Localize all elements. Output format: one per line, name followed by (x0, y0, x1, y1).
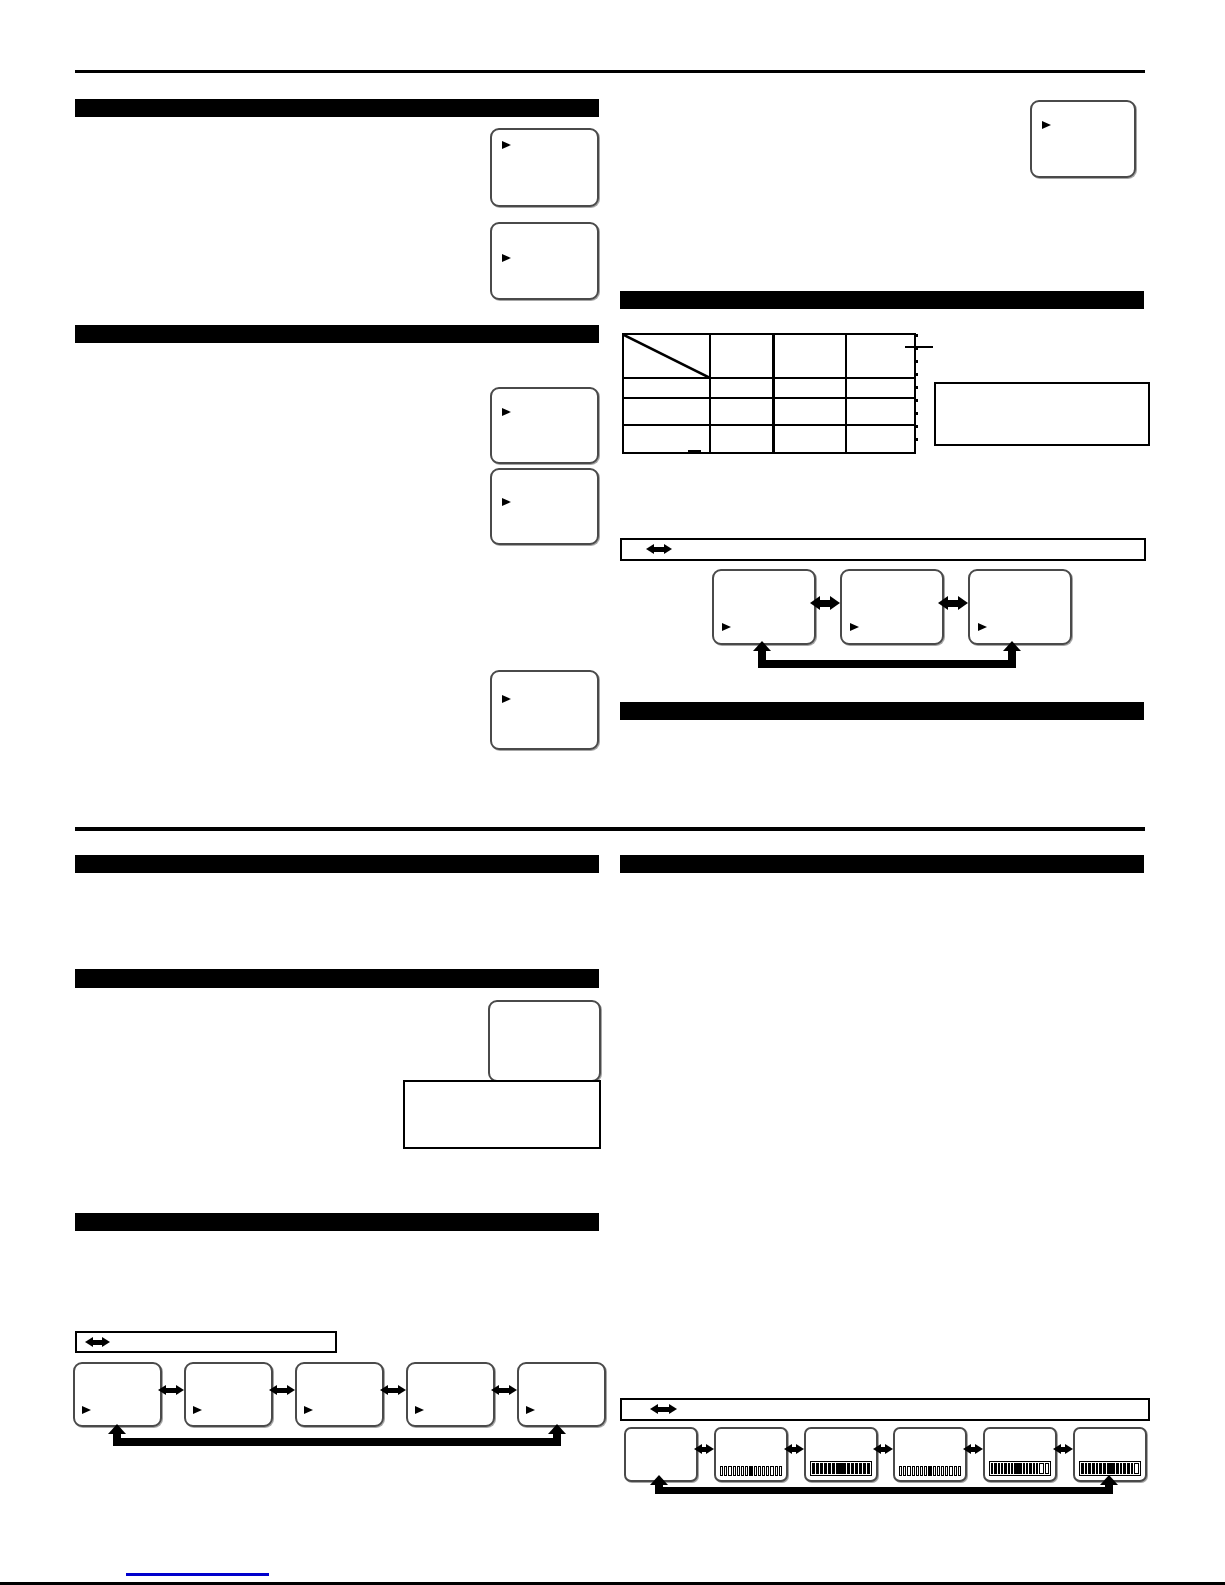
double-arrow-icon (694, 1444, 714, 1454)
flow-screen-2 (714, 1427, 788, 1482)
flow-legend-bar (75, 1331, 337, 1353)
section-heading-bar-left-5 (75, 1213, 599, 1231)
up-arrowhead-icon (108, 1424, 126, 1434)
table-column-line (845, 335, 847, 452)
double-arrow-icon (963, 1444, 983, 1454)
double-arrow-icon (938, 596, 968, 610)
section-heading-bar-right-1 (620, 291, 1144, 309)
section-heading-bar-left-4 (75, 969, 599, 988)
cursor-icon (722, 623, 731, 631)
double-arrow-icon (810, 596, 840, 610)
section-heading-bar-left-3 (75, 855, 599, 873)
table-row-line (624, 424, 914, 426)
cursor-icon (82, 1406, 91, 1414)
osd-bar-graphic (899, 1466, 961, 1476)
osd-screen-diagram (490, 670, 599, 750)
osd-screen-diagram (488, 1000, 601, 1082)
double-arrow-icon (491, 1385, 517, 1395)
flow-screen-2 (840, 569, 944, 645)
up-arrowhead-icon (1100, 1475, 1118, 1485)
up-arrowhead-icon (548, 1424, 566, 1434)
osd-bar-graphic (989, 1461, 1051, 1476)
flow-screen-1 (73, 1362, 162, 1427)
double-arrow-icon (873, 1444, 893, 1454)
page-divider-rule (75, 827, 1145, 831)
table-header-diagonal (624, 335, 710, 378)
up-arrowhead-icon (650, 1475, 668, 1485)
loop-arrow-riser (758, 650, 766, 662)
osd-screen-diagram (490, 468, 599, 545)
table-callout-line (905, 346, 933, 348)
flow-screen-3 (804, 1427, 878, 1482)
loop-arrow-line (655, 1487, 1113, 1494)
cursor-icon (850, 623, 859, 631)
flow-legend-bar (620, 1398, 1150, 1421)
double-arrow-icon (85, 1337, 110, 1347)
top-rule (75, 70, 1145, 73)
cursor-icon (1042, 121, 1051, 129)
loop-arrow-line (758, 660, 1016, 668)
up-arrowhead-icon (1003, 641, 1021, 651)
double-arrow-icon (380, 1385, 406, 1395)
flow-legend-bar (620, 538, 1146, 561)
table-footnote-dash (688, 450, 701, 453)
section-heading-bar-left-2 (75, 325, 599, 343)
cursor-icon (978, 623, 987, 631)
cursor-icon (526, 1406, 535, 1414)
footer-link[interactable] (126, 1573, 269, 1576)
flow-screen-1 (712, 569, 816, 645)
double-arrow-icon (158, 1385, 184, 1395)
cursor-icon (502, 408, 511, 416)
cursor-icon (415, 1406, 424, 1414)
double-arrow-icon (646, 544, 672, 554)
section-heading-bar-right-2 (620, 702, 1144, 720)
flow-screen-1 (624, 1427, 698, 1482)
flow-screen-4 (406, 1362, 495, 1427)
flow-screen-3 (968, 569, 1072, 645)
osd-screen-diagram (490, 387, 599, 464)
cursor-icon (304, 1406, 313, 1414)
cursor-icon (502, 695, 511, 703)
note-rectangle (403, 1080, 601, 1149)
osd-bar-graphic (810, 1461, 872, 1476)
settings-table (622, 333, 916, 454)
manual-page (0, 0, 1225, 1585)
table-row-line (624, 397, 914, 399)
osd-bar-graphic (720, 1466, 782, 1476)
double-arrow-icon (1053, 1444, 1073, 1454)
table-callout-dotted-line (916, 334, 918, 446)
flow-screen-2 (184, 1362, 273, 1427)
cursor-icon (193, 1406, 202, 1414)
cursor-icon (502, 254, 511, 262)
up-arrowhead-icon (753, 641, 771, 651)
section-heading-bar-right-3 (620, 855, 1144, 873)
flow-screen-5 (517, 1362, 606, 1427)
table-note-box (934, 382, 1150, 446)
osd-screen-diagram (1030, 100, 1136, 178)
cursor-icon (502, 141, 511, 149)
double-arrow-icon (650, 1404, 677, 1414)
section-heading-bar-left-1 (75, 99, 599, 117)
osd-bar-graphic (1079, 1461, 1141, 1476)
cursor-icon (502, 498, 511, 506)
flow-screen-6 (1073, 1427, 1147, 1482)
double-arrow-icon (269, 1385, 295, 1395)
table-column-line (772, 335, 775, 452)
flow-screen-3 (295, 1362, 384, 1427)
osd-screen-diagram (490, 222, 599, 300)
flow-screen-5 (983, 1427, 1057, 1482)
double-arrow-icon (784, 1444, 804, 1454)
osd-screen-diagram (490, 128, 599, 207)
flow-screen-4 (893, 1427, 967, 1482)
loop-arrow-riser (1008, 650, 1016, 662)
loop-arrow-line (113, 1438, 561, 1446)
